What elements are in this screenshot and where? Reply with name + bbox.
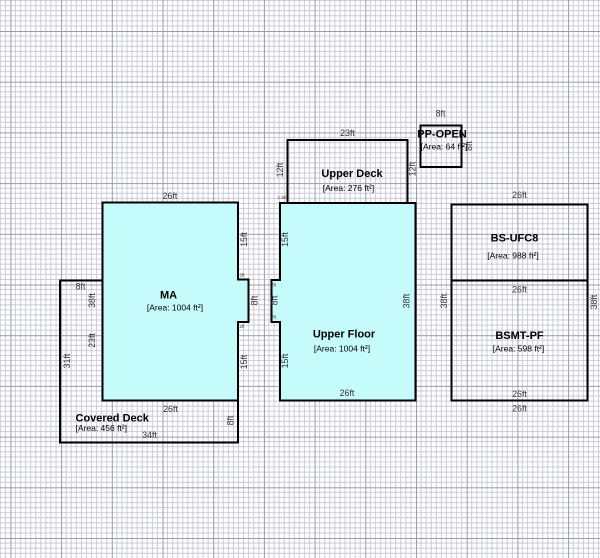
svg-text:PP-OPEN: PP-OPEN	[417, 129, 467, 141]
svg-text:8ft: 8ft	[76, 282, 86, 292]
svg-text:[Area: 598 ft²]: [Area: 598 ft²]	[493, 344, 545, 354]
svg-text:Upper Floor: Upper Floor	[313, 329, 376, 341]
svg-text:BS-UFC8: BS-UFC8	[491, 233, 539, 245]
svg-text:2ft: 2ft	[239, 324, 245, 329]
svg-text:12ft: 12ft	[275, 162, 285, 177]
svg-text:26ft: 26ft	[163, 404, 178, 414]
svg-text:MA: MA	[160, 290, 177, 302]
svg-text:26ft: 26ft	[340, 388, 355, 398]
svg-text:[Area: 276 ft²]: [Area: 276 ft²]	[323, 183, 375, 193]
svg-text:23ft: 23ft	[340, 128, 355, 138]
svg-text:2ft: 2ft	[271, 283, 277, 288]
svg-text:26ft: 26ft	[512, 404, 527, 414]
svg-text:38ft: 38ft	[439, 293, 449, 308]
svg-text:31ft: 31ft	[62, 353, 72, 368]
svg-text:26ft: 26ft	[512, 190, 527, 200]
svg-text:15ft: 15ft	[280, 232, 290, 247]
svg-text:BSMT-PF: BSMT-PF	[495, 330, 544, 342]
svg-text:15ft: 15ft	[280, 353, 290, 368]
svg-text:15ft: 15ft	[239, 232, 249, 247]
svg-text:Upper Deck: Upper Deck	[321, 168, 383, 180]
svg-text:38ft: 38ft	[87, 293, 97, 308]
svg-text:38ft: 38ft	[402, 293, 412, 308]
svg-text:8ft: 8ft	[436, 109, 446, 119]
svg-text:8ft: 8ft	[464, 141, 474, 151]
svg-text:34ft: 34ft	[142, 430, 157, 440]
svg-text:2ft: 2ft	[271, 315, 277, 320]
svg-text:[Area: 1004 ft²]: [Area: 1004 ft²]	[147, 303, 203, 313]
svg-text:8ft: 8ft	[226, 415, 236, 425]
svg-text:26ft: 26ft	[512, 389, 527, 399]
svg-text:12ft: 12ft	[408, 161, 418, 176]
svg-text:23ft: 23ft	[87, 333, 97, 348]
svg-text:[Area: 988 ft²]: [Area: 988 ft²]	[487, 251, 539, 261]
svg-text:15ft: 15ft	[239, 354, 249, 369]
svg-text:26ft: 26ft	[163, 191, 178, 201]
svg-text:8ft: 8ft	[270, 295, 280, 305]
svg-text:38ft: 38ft	[589, 294, 599, 309]
svg-text:[Area: 456 ft²]: [Area: 456 ft²]	[76, 423, 128, 433]
svg-text:[Area: 64 ft²]: [Area: 64 ft²]	[421, 142, 468, 152]
svg-text:2ft: 2ft	[239, 273, 245, 278]
svg-text:1.5ft: 1.5ft	[278, 195, 288, 200]
svg-text:8ft: 8ft	[250, 295, 260, 305]
svg-text:26ft: 26ft	[512, 285, 527, 295]
svg-text:[Area: 1004 ft²]: [Area: 1004 ft²]	[314, 344, 370, 354]
